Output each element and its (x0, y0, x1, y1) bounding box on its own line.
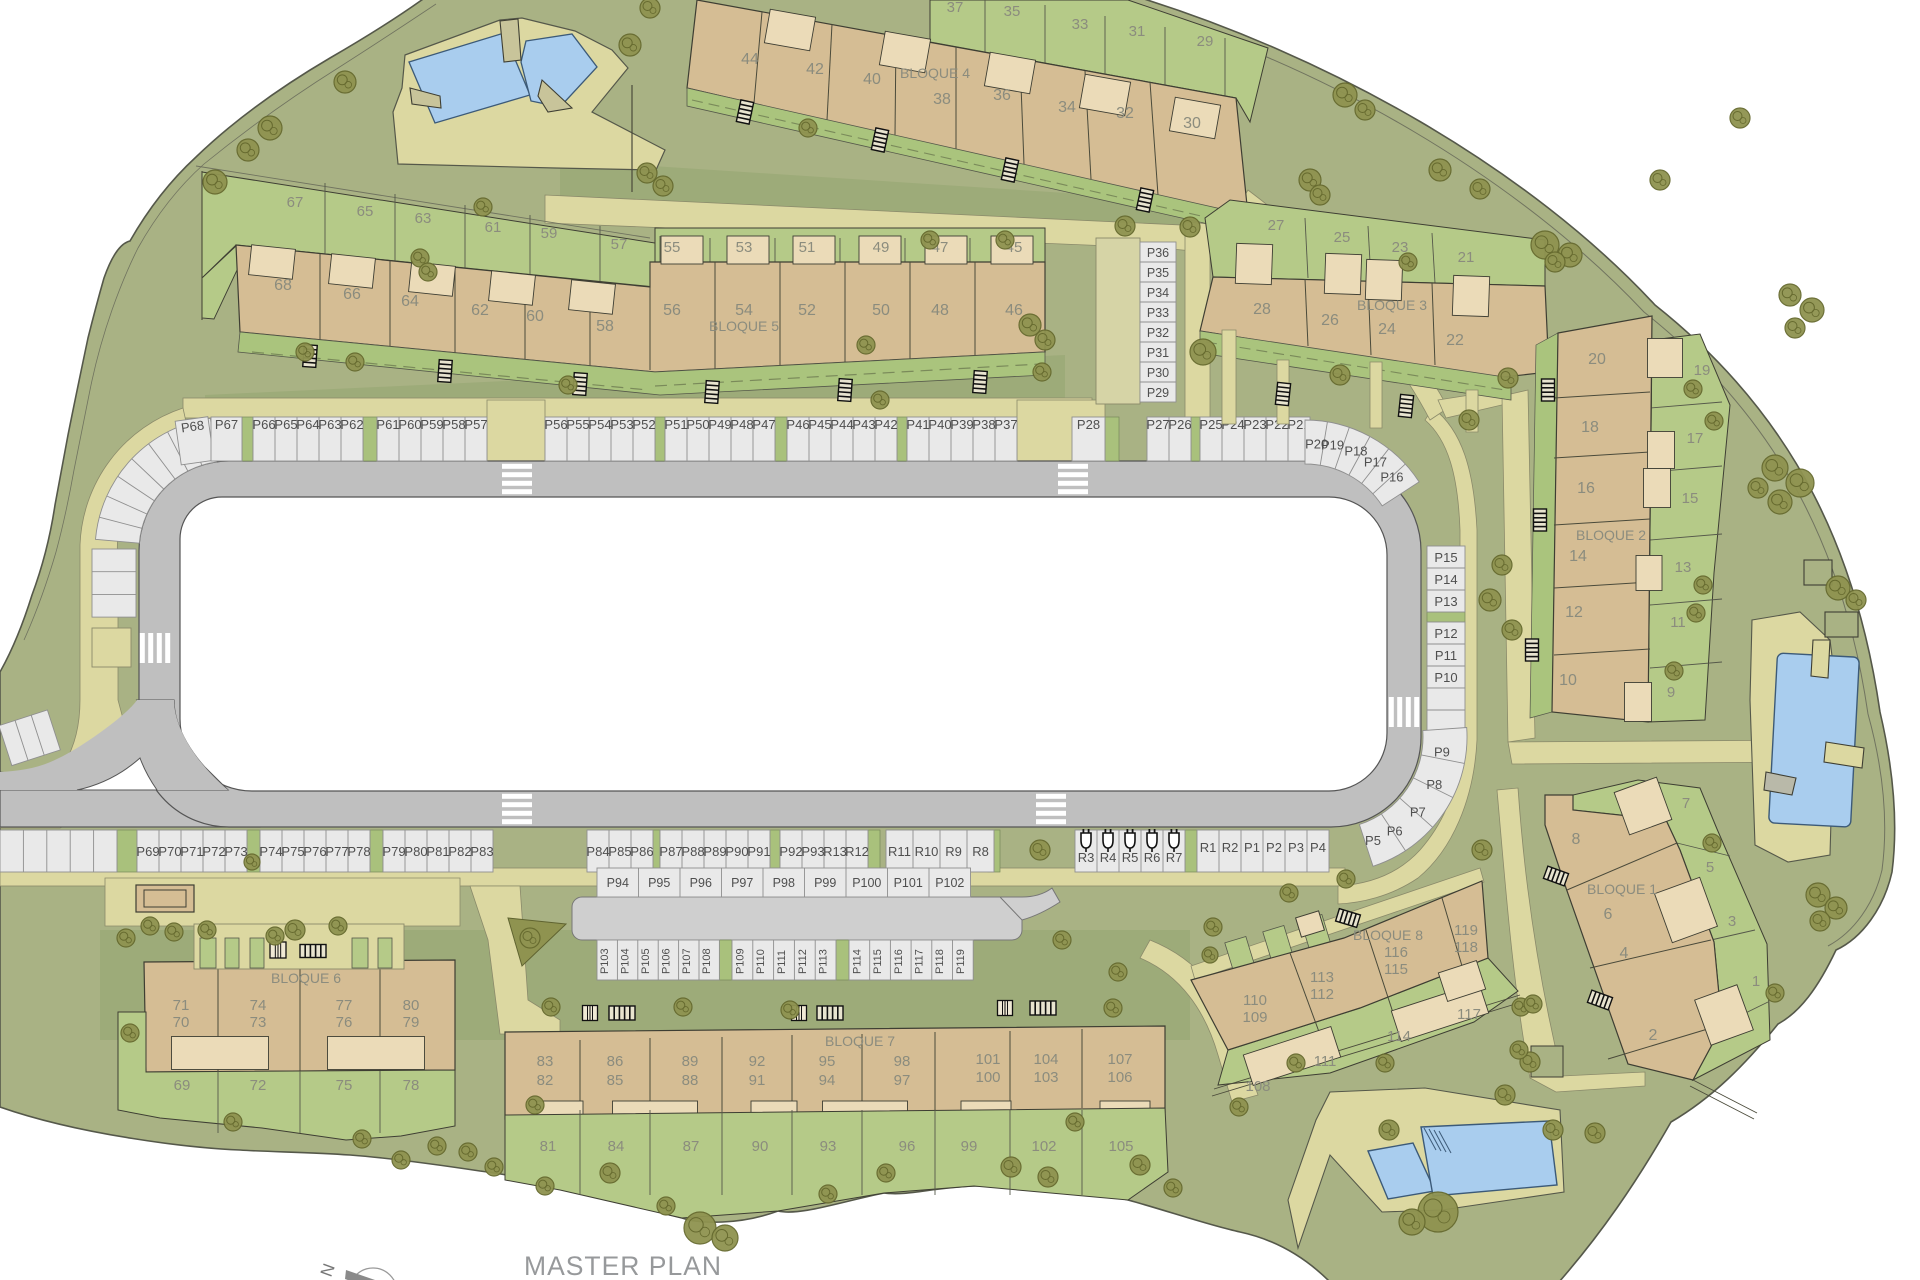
svg-text:P37: P37 (994, 417, 1017, 432)
svg-text:P96: P96 (690, 876, 712, 890)
svg-text:P99: P99 (814, 876, 836, 890)
svg-text:56: 56 (663, 302, 681, 319)
svg-text:P30: P30 (1147, 366, 1169, 380)
svg-text:P44: P44 (830, 417, 853, 432)
svg-text:80: 80 (403, 997, 420, 1014)
svg-text:P115: P115 (872, 949, 884, 974)
svg-text:R11: R11 (888, 844, 911, 859)
svg-text:BLOQUE 1: BLOQUE 1 (1587, 881, 1657, 897)
svg-text:P4: P4 (1310, 840, 1326, 855)
svg-text:P75: P75 (281, 844, 304, 859)
svg-text:P26: P26 (1168, 417, 1191, 432)
svg-text:16: 16 (1577, 480, 1595, 497)
svg-text:106: 106 (1107, 1069, 1132, 1086)
svg-text:P95: P95 (648, 876, 670, 890)
svg-text:P112: P112 (797, 949, 809, 974)
svg-text:R13: R13 (823, 844, 847, 859)
svg-text:112: 112 (1310, 986, 1334, 1003)
svg-text:75: 75 (336, 1077, 353, 1094)
svg-text:P97: P97 (731, 876, 753, 890)
svg-text:46: 46 (1005, 302, 1023, 319)
svg-text:20: 20 (1588, 351, 1606, 368)
svg-text:116: 116 (1384, 944, 1408, 961)
svg-text:49: 49 (873, 239, 890, 256)
svg-text:P74: P74 (259, 844, 282, 859)
svg-text:P54: P54 (588, 417, 611, 432)
svg-text:P66: P66 (252, 417, 275, 432)
svg-text:110: 110 (1243, 992, 1267, 1009)
svg-text:BLOQUE 2: BLOQUE 2 (1576, 527, 1646, 543)
svg-text:P62: P62 (340, 417, 363, 432)
svg-text:P107: P107 (681, 948, 693, 974)
svg-text:P43: P43 (852, 417, 875, 432)
svg-text:32: 32 (1116, 105, 1134, 122)
svg-text:P118: P118 (934, 949, 946, 974)
svg-text:P6: P6 (1387, 824, 1403, 839)
svg-text:P72: P72 (202, 844, 225, 859)
svg-text:62: 62 (471, 302, 489, 319)
svg-text:BLOQUE 7: BLOQUE 7 (825, 1033, 895, 1049)
svg-text:P52: P52 (632, 417, 655, 432)
svg-text:86: 86 (607, 1053, 624, 1070)
svg-text:BLOQUE 5: BLOQUE 5 (709, 318, 779, 334)
svg-text:P46: P46 (786, 417, 809, 432)
svg-text:P50: P50 (686, 417, 709, 432)
svg-text:96: 96 (899, 1138, 916, 1155)
svg-text:57: 57 (611, 236, 628, 253)
svg-text:P105: P105 (640, 948, 652, 974)
svg-text:58: 58 (596, 318, 614, 335)
svg-text:77: 77 (336, 997, 353, 1014)
svg-text:P78: P78 (347, 844, 370, 859)
svg-text:P23: P23 (1243, 417, 1266, 432)
svg-text:P57: P57 (464, 417, 487, 432)
svg-text:BLOQUE 8: BLOQUE 8 (1353, 927, 1423, 943)
svg-text:24: 24 (1378, 321, 1396, 338)
svg-text:21: 21 (1458, 249, 1475, 266)
svg-text:93: 93 (820, 1138, 837, 1155)
svg-text:71: 71 (173, 997, 190, 1014)
svg-text:68: 68 (274, 277, 292, 294)
svg-text:113: 113 (1310, 969, 1334, 986)
svg-text:P39: P39 (950, 417, 973, 432)
svg-text:31: 31 (1129, 23, 1146, 40)
svg-text:P64: P64 (296, 417, 319, 432)
svg-text:69: 69 (174, 1077, 191, 1094)
svg-text:76: 76 (336, 1014, 353, 1031)
svg-text:R3: R3 (1078, 850, 1095, 865)
svg-text:119: 119 (1454, 922, 1478, 939)
svg-text:92: 92 (749, 1053, 766, 1070)
svg-text:P91: P91 (747, 844, 770, 859)
svg-text:P55: P55 (566, 417, 589, 432)
svg-text:7: 7 (1682, 795, 1690, 812)
svg-text:74: 74 (250, 997, 267, 1014)
svg-text:81: 81 (540, 1138, 557, 1155)
svg-text:3: 3 (1728, 913, 1736, 930)
svg-text:R4: R4 (1100, 850, 1117, 865)
svg-text:115: 115 (1384, 961, 1408, 978)
svg-text:91: 91 (749, 1072, 766, 1089)
svg-text:59: 59 (541, 225, 558, 242)
svg-text:34: 34 (1058, 99, 1076, 116)
svg-text:22: 22 (1446, 332, 1464, 349)
svg-text:82: 82 (537, 1072, 554, 1089)
svg-text:4: 4 (1620, 945, 1629, 962)
svg-text:R1: R1 (1200, 840, 1217, 855)
svg-text:12: 12 (1565, 604, 1583, 621)
svg-text:P38: P38 (972, 417, 995, 432)
svg-text:P100: P100 (852, 876, 881, 890)
svg-text:87: 87 (683, 1138, 700, 1155)
svg-text:55: 55 (664, 239, 681, 256)
svg-text:P117: P117 (913, 949, 925, 974)
svg-text:P79: P79 (382, 844, 405, 859)
svg-text:79: 79 (403, 1014, 420, 1031)
svg-text:P116: P116 (893, 949, 905, 974)
svg-text:P70: P70 (158, 844, 181, 859)
svg-text:P28: P28 (1077, 417, 1100, 432)
svg-text:P34: P34 (1147, 286, 1169, 300)
svg-text:66: 66 (343, 286, 361, 303)
svg-text:P8: P8 (1426, 777, 1442, 792)
svg-text:P11: P11 (1435, 648, 1457, 663)
svg-text:R5: R5 (1122, 850, 1139, 865)
svg-text:26: 26 (1321, 312, 1339, 329)
svg-text:P110: P110 (755, 949, 767, 974)
svg-text:51: 51 (799, 239, 816, 256)
svg-text:P86: P86 (630, 844, 653, 859)
svg-text:BLOQUE 3: BLOQUE 3 (1357, 297, 1427, 313)
svg-text:P60: P60 (398, 417, 421, 432)
svg-text:90: 90 (752, 1138, 769, 1155)
svg-text:P45: P45 (808, 417, 831, 432)
svg-text:14: 14 (1569, 548, 1587, 565)
svg-text:P68: P68 (180, 417, 205, 435)
svg-text:88: 88 (682, 1072, 699, 1089)
svg-text:104: 104 (1033, 1051, 1058, 1068)
svg-text:89: 89 (682, 1053, 699, 1070)
svg-text:103: 103 (1033, 1069, 1058, 1086)
svg-text:2: 2 (1649, 1027, 1658, 1044)
svg-text:R9: R9 (945, 844, 962, 859)
svg-text:65: 65 (357, 203, 374, 220)
svg-text:R8: R8 (972, 844, 989, 859)
svg-text:118: 118 (1454, 939, 1478, 956)
svg-text:35: 35 (1004, 3, 1021, 20)
svg-text:107: 107 (1107, 1051, 1132, 1068)
svg-text:29: 29 (1197, 33, 1214, 50)
svg-text:61: 61 (485, 219, 502, 236)
svg-text:P63: P63 (318, 417, 341, 432)
svg-text:108: 108 (1245, 1078, 1270, 1095)
svg-text:MASTER PLAN: MASTER PLAN (524, 1251, 722, 1280)
svg-text:P19: P19 (1321, 437, 1344, 452)
svg-text:P81: P81 (426, 844, 449, 859)
svg-text:42: 42 (806, 61, 824, 78)
svg-text:P87: P87 (659, 844, 682, 859)
svg-text:44: 44 (741, 51, 759, 68)
svg-text:P58: P58 (442, 417, 465, 432)
svg-text:P13: P13 (1434, 594, 1457, 609)
svg-text:P92: P92 (779, 844, 802, 859)
svg-text:P103: P103 (599, 948, 611, 974)
svg-text:P111: P111 (776, 950, 788, 974)
svg-text:P93: P93 (801, 844, 824, 859)
svg-text:P101: P101 (894, 876, 923, 890)
svg-text:60: 60 (526, 308, 544, 325)
svg-text:101: 101 (975, 1051, 1000, 1068)
svg-text:9: 9 (1667, 684, 1675, 701)
svg-text:P35: P35 (1147, 266, 1169, 280)
svg-text:27: 27 (1268, 217, 1285, 234)
svg-text:P7: P7 (1410, 804, 1426, 819)
svg-text:70: 70 (173, 1014, 190, 1031)
svg-text:P49: P49 (708, 417, 731, 432)
svg-text:P71: P71 (180, 844, 203, 859)
svg-text:11: 11 (1670, 614, 1686, 631)
svg-text:P88: P88 (681, 844, 704, 859)
svg-text:85: 85 (607, 1072, 624, 1089)
svg-text:36: 36 (993, 87, 1011, 104)
svg-text:5: 5 (1706, 859, 1714, 876)
svg-text:P42: P42 (874, 417, 897, 432)
svg-text:114: 114 (1387, 1028, 1411, 1045)
svg-text:P102: P102 (935, 876, 964, 890)
svg-text:P32: P32 (1147, 326, 1169, 340)
svg-text:P14: P14 (1434, 572, 1457, 587)
svg-text:P80: P80 (404, 844, 427, 859)
svg-text:98: 98 (894, 1053, 911, 1070)
svg-text:18: 18 (1581, 419, 1599, 436)
svg-text:P41: P41 (906, 417, 929, 432)
svg-text:P89: P89 (703, 844, 726, 859)
svg-text:P77: P77 (325, 844, 348, 859)
svg-text:P36: P36 (1147, 246, 1169, 260)
svg-text:P106: P106 (660, 948, 672, 974)
svg-text:R10: R10 (915, 844, 939, 859)
svg-text:67: 67 (287, 194, 304, 211)
svg-text:P10: P10 (1434, 670, 1457, 685)
svg-text:30: 30 (1183, 115, 1201, 132)
svg-text:P119: P119 (955, 949, 967, 974)
svg-text:P17: P17 (1364, 455, 1387, 470)
svg-text:P31: P31 (1147, 346, 1169, 360)
svg-text:83: 83 (537, 1053, 554, 1070)
svg-text:15: 15 (1682, 490, 1699, 507)
svg-text:1: 1 (1752, 973, 1760, 990)
svg-text:P25: P25 (1199, 417, 1222, 432)
svg-text:40: 40 (863, 71, 881, 88)
svg-text:111: 111 (1314, 1053, 1337, 1070)
svg-text:25: 25 (1334, 229, 1351, 246)
svg-text:R2: R2 (1222, 840, 1239, 855)
svg-text:8: 8 (1572, 831, 1581, 848)
svg-text:100: 100 (975, 1069, 1000, 1086)
svg-text:P94: P94 (607, 876, 629, 890)
svg-text:37: 37 (947, 0, 964, 16)
svg-text:R12: R12 (845, 844, 869, 859)
svg-text:P69: P69 (136, 844, 159, 859)
svg-text:10: 10 (1559, 672, 1577, 689)
svg-text:P48: P48 (730, 417, 753, 432)
svg-text:117: 117 (1457, 1006, 1481, 1023)
svg-text:72: 72 (250, 1077, 267, 1094)
svg-text:P40: P40 (928, 417, 951, 432)
svg-text:64: 64 (401, 293, 419, 310)
svg-text:P73: P73 (224, 844, 247, 859)
svg-text:P108: P108 (701, 948, 713, 974)
svg-text:P59: P59 (420, 417, 443, 432)
svg-text:BLOQUE 4: BLOQUE 4 (900, 65, 970, 81)
svg-text:109: 109 (1242, 1009, 1267, 1026)
svg-text:P29: P29 (1147, 386, 1169, 400)
svg-text:P56: P56 (544, 417, 567, 432)
svg-text:P3: P3 (1288, 840, 1304, 855)
svg-text:73: 73 (250, 1014, 267, 1031)
svg-text:P51: P51 (664, 417, 687, 432)
svg-text:P67: P67 (215, 417, 238, 432)
svg-text:P104: P104 (620, 948, 632, 974)
svg-text:P76: P76 (303, 844, 326, 859)
svg-text:P12: P12 (1434, 626, 1457, 641)
svg-text:33: 33 (1072, 16, 1089, 33)
svg-text:BLOQUE 6: BLOQUE 6 (271, 970, 341, 986)
svg-text:P27: P27 (1146, 417, 1169, 432)
svg-text:54: 54 (735, 302, 753, 319)
svg-text:63: 63 (415, 210, 432, 227)
svg-text:48: 48 (931, 302, 949, 319)
svg-text:P5: P5 (1365, 833, 1381, 848)
svg-text:53: 53 (736, 239, 753, 256)
svg-text:P90: P90 (725, 844, 748, 859)
svg-text:P53: P53 (610, 417, 633, 432)
svg-text:P113: P113 (818, 949, 830, 974)
svg-text:P47: P47 (752, 417, 775, 432)
svg-text:94: 94 (819, 1072, 836, 1089)
svg-text:P33: P33 (1147, 306, 1169, 320)
svg-text:P109: P109 (734, 948, 746, 974)
svg-text:P1: P1 (1244, 840, 1260, 855)
svg-text:17: 17 (1687, 430, 1704, 447)
svg-text:97: 97 (894, 1072, 911, 1089)
svg-text:P9: P9 (1434, 745, 1450, 760)
svg-text:P61: P61 (376, 417, 399, 432)
svg-text:84: 84 (608, 1138, 625, 1155)
svg-text:95: 95 (819, 1053, 836, 1070)
svg-text:P98: P98 (773, 876, 795, 890)
svg-text:P114: P114 (851, 949, 863, 974)
svg-text:102: 102 (1031, 1138, 1056, 1155)
svg-text:P83: P83 (470, 844, 493, 859)
svg-text:P2: P2 (1266, 840, 1282, 855)
svg-text:78: 78 (403, 1077, 420, 1094)
svg-text:28: 28 (1253, 301, 1271, 318)
svg-text:P15: P15 (1434, 550, 1457, 565)
svg-text:P85: P85 (608, 844, 631, 859)
svg-text:50: 50 (872, 302, 890, 319)
svg-text:P82: P82 (448, 844, 471, 859)
svg-text:52: 52 (798, 302, 816, 319)
svg-text:P16: P16 (1380, 470, 1403, 485)
svg-text:P65: P65 (274, 417, 297, 432)
svg-text:105: 105 (1108, 1138, 1133, 1155)
svg-text:P84: P84 (586, 844, 609, 859)
svg-text:6: 6 (1604, 906, 1613, 923)
svg-text:13: 13 (1675, 559, 1692, 576)
svg-text:99: 99 (961, 1138, 978, 1155)
svg-text:R7: R7 (1166, 850, 1183, 865)
svg-text:19: 19 (1694, 362, 1711, 379)
svg-text:38: 38 (933, 91, 951, 108)
svg-text:R6: R6 (1144, 850, 1161, 865)
